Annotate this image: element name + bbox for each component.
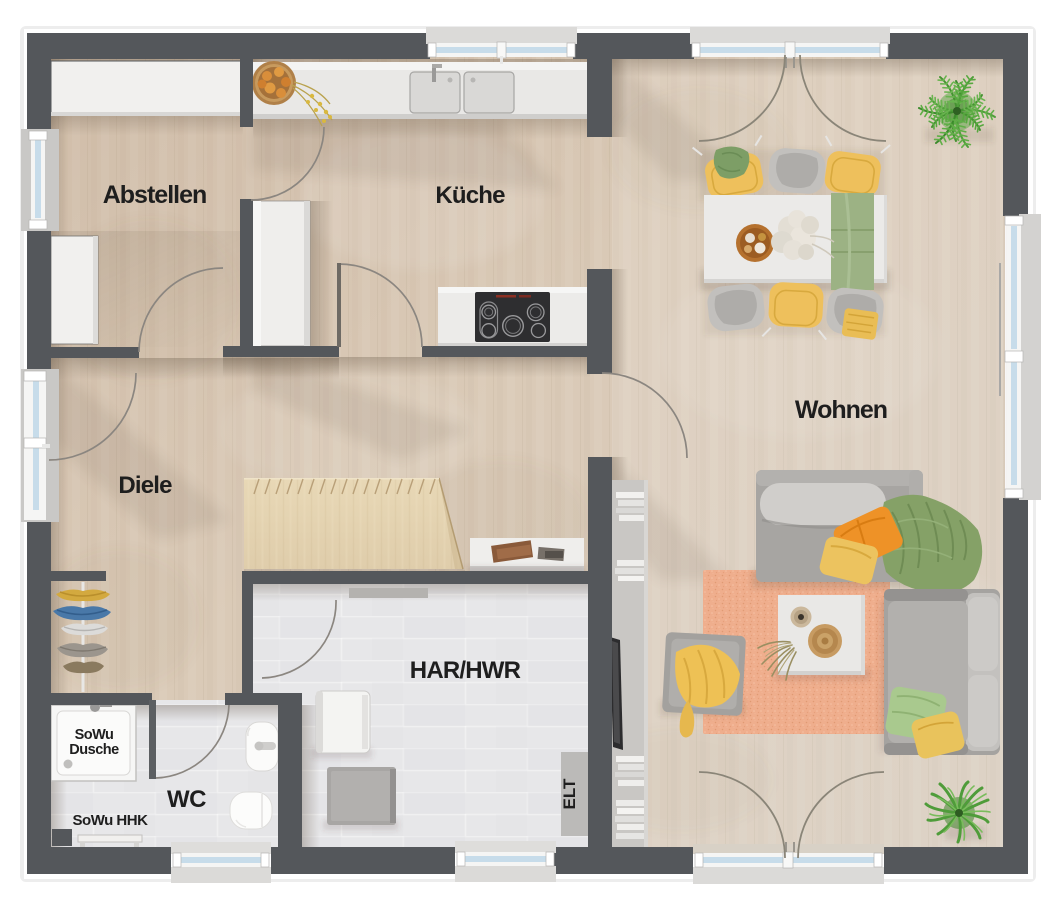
svg-text:WC: WC	[167, 786, 206, 813]
svg-text:Wohnen: Wohnen	[795, 396, 887, 424]
svg-text:Küche: Küche	[435, 182, 505, 209]
svg-text:HAR/HWR: HAR/HWR	[410, 657, 521, 684]
svg-text:ELT: ELT	[560, 778, 579, 809]
svg-text:SoWu: SoWu	[75, 727, 114, 743]
svg-text:SoWu HHK: SoWu HHK	[73, 812, 149, 829]
svg-text:Diele: Diele	[118, 472, 172, 499]
svg-text:Dusche: Dusche	[69, 742, 119, 758]
svg-text:Abstellen: Abstellen	[103, 181, 207, 209]
